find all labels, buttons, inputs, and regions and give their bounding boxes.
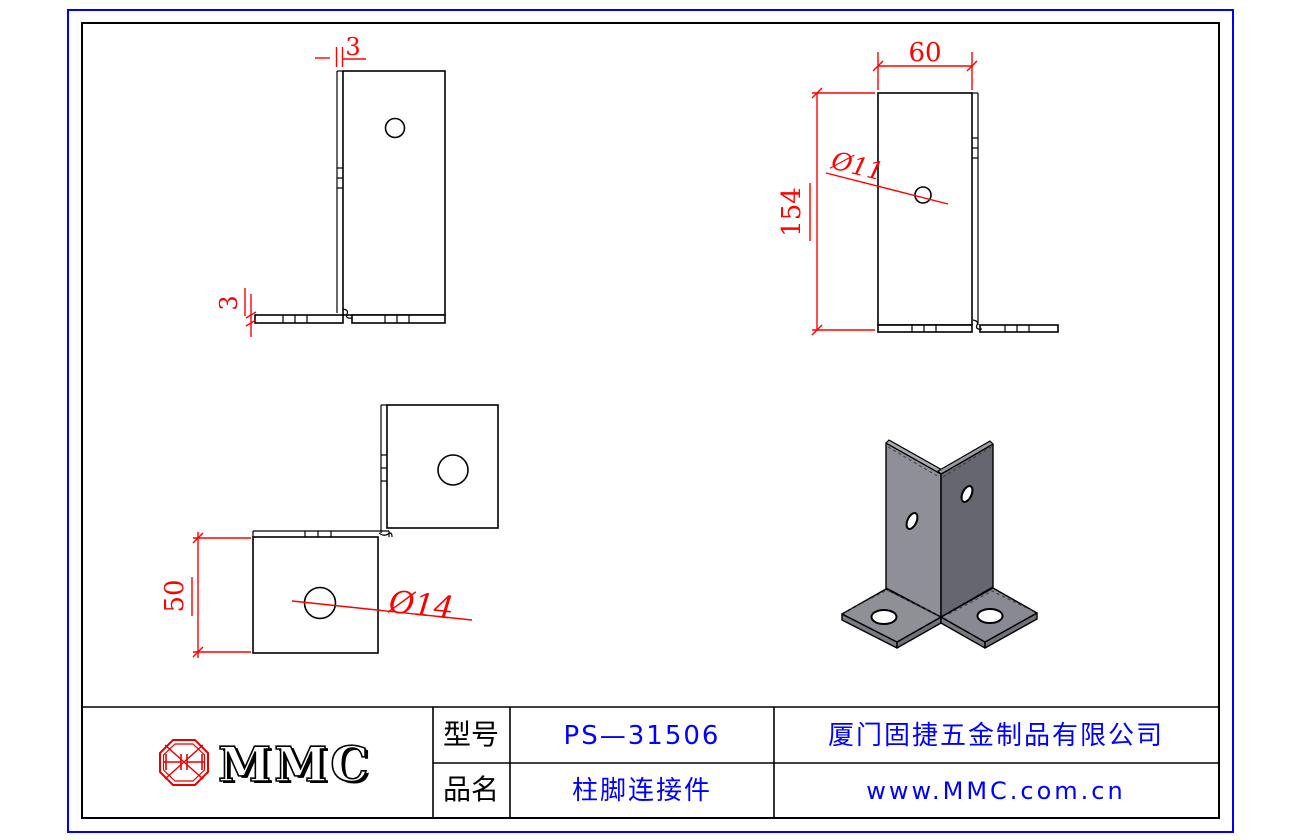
dim-text-height: 154 [777, 187, 807, 237]
side-view: 3 3 [215, 33, 445, 337]
break-squiggle [379, 533, 392, 537]
dim-text-width: 60 [908, 38, 941, 68]
outer-blue-border [68, 10, 1233, 832]
product-name-label: 品名 [443, 773, 499, 806]
dim-text-flange-thickness: 3 [345, 33, 360, 61]
drawing-sheet: 3 3 60 [0, 0, 1300, 840]
isometric-view [842, 440, 1037, 648]
front-hole [915, 187, 931, 203]
company-name: 厦门固捷五金制品有限公司 [828, 721, 1164, 751]
model-label: 型号 [443, 718, 499, 751]
dim-height-154: 154 [777, 88, 875, 335]
dim-depth-50: 50 [160, 532, 251, 658]
dim-text-depth: 50 [160, 579, 190, 612]
logo-diamond-icon [160, 740, 208, 785]
front-base-right [980, 325, 1058, 332]
inner-black-border [82, 23, 1219, 818]
logo-wordmark: MMC [218, 737, 371, 793]
top-view: 50 Ø14 [160, 405, 498, 658]
title-block: MMC MMC 型号 PS—31506 厦门固捷五金制品有限公司 品名 柱脚连接… [82, 707, 1219, 818]
side-hole [386, 119, 405, 138]
side-plate [343, 71, 445, 315]
product-name-value: 柱脚连接件 [572, 776, 712, 806]
front-plate [878, 93, 972, 325]
dim-text-base-thickness: 3 [215, 295, 243, 310]
sheet-borders [68, 10, 1233, 832]
company-logo: MMC MMC [160, 737, 374, 795]
iso-hole-flange-left [872, 610, 897, 624]
company-website: www.MMC.com.cn [866, 777, 1125, 805]
dim-text-hole-14: Ø14 [386, 584, 455, 627]
front-base-left [878, 325, 972, 332]
iso-hole-flange-right [978, 609, 1003, 623]
model-value: PS—31506 [564, 721, 721, 751]
side-base-left [255, 315, 343, 323]
side-base-right [352, 315, 445, 323]
dim-width-60: 60 [873, 38, 977, 90]
top-hole-upper [438, 455, 468, 485]
dim-base-thickness: 3 [215, 288, 256, 337]
front-view: 60 154 Ø11 [777, 38, 1058, 335]
dim-flange-thickness: 3 [315, 33, 366, 67]
